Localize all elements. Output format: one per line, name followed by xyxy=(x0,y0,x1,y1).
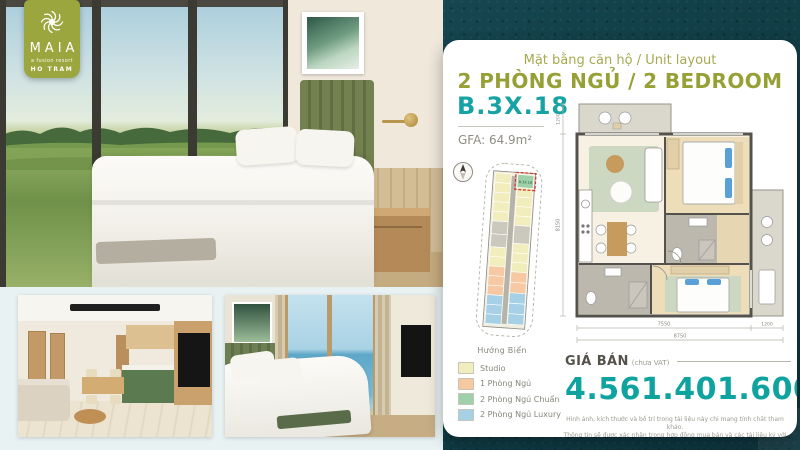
background-texture-patch xyxy=(758,408,800,450)
green-cabinets xyxy=(122,370,176,403)
upper-cabinets xyxy=(126,325,174,349)
legend-item: 2 Phòng Ngủ Chuẩn xyxy=(458,393,561,405)
dining-chair xyxy=(110,395,121,404)
bed-throw xyxy=(96,238,217,264)
building-slab: B.3X.18 xyxy=(475,162,543,337)
bedroom-ocean-photo xyxy=(225,295,435,437)
disclaimer: Hình ảnh, kích thước và bố trí trong tài… xyxy=(559,416,791,437)
pillow xyxy=(295,129,355,168)
price-vat-note: (chưa VAT) xyxy=(632,359,670,367)
price-label: GIÁ BÁN xyxy=(565,354,629,369)
pillow xyxy=(258,357,302,387)
svg-text:7550: 7550 xyxy=(658,322,671,328)
unit-info-card: Mặt bằng căn hộ / Unit layout 2 PHÒNG NG… xyxy=(443,40,797,437)
legend-item: 1 Phòng Ngủ xyxy=(458,378,561,390)
legend-swatch-2br-luxury xyxy=(458,409,474,421)
window-mullion xyxy=(0,0,6,287)
svg-text:1200: 1200 xyxy=(761,322,773,328)
maia-logo-badge: MAIA a fusion resort HO TRAM xyxy=(24,0,80,78)
legend-swatch-studio xyxy=(458,362,474,374)
card-header: Mặt bằng căn hộ / Unit layout 2 PHÒNG NG… xyxy=(443,53,797,93)
compass-icon xyxy=(454,163,473,182)
svg-text:8750: 8750 xyxy=(674,334,687,340)
disclaimer-line: Thông tin sẽ được xác nhận trong hợp đồn… xyxy=(559,432,791,437)
sea-direction-label: Hướng Biển xyxy=(451,346,553,355)
svg-text:1200: 1200 xyxy=(556,113,562,125)
wall-art xyxy=(302,12,364,74)
disclaimer-line: Hình ảnh, kích thước và bố trí trong tài… xyxy=(559,416,791,432)
brand-location: HO TRAM xyxy=(24,66,80,73)
building-keyplan: B.3X.18 xyxy=(449,156,553,348)
wall-art-print xyxy=(307,17,359,69)
legend-swatch-2br-standard xyxy=(458,393,474,405)
flower-icon xyxy=(37,7,67,37)
dining-table xyxy=(82,377,124,394)
bed xyxy=(92,156,374,287)
pillow xyxy=(235,126,299,166)
divider xyxy=(677,361,791,362)
divider xyxy=(458,126,544,127)
legend-item: Studio xyxy=(458,362,561,374)
unit-gfa: GFA: 64.9m² xyxy=(458,133,532,147)
unit-type-legend: Studio 1 Phòng Ngủ 2 Phòng Ngủ Chuẩn 2 P… xyxy=(458,362,561,424)
duvet-fold xyxy=(92,200,374,205)
brand-tagline: a fusion resort xyxy=(24,58,80,64)
wall-lamp-icon xyxy=(404,113,418,127)
svg-text:8150: 8150 xyxy=(556,219,562,232)
card-title: 2 PHÒNG NGỦ / 2 BEDROOM xyxy=(443,69,797,93)
tv-screen xyxy=(401,325,431,377)
coffee-table xyxy=(74,409,106,424)
legend-swatch-1br xyxy=(458,378,474,390)
card-subtitle: Mặt bằng căn hộ / Unit layout xyxy=(443,53,797,68)
tv-screen xyxy=(178,333,210,387)
ac-vent xyxy=(70,304,160,311)
brochure-page: MAIA a fusion resort HO TRAM Mặt bằng că… xyxy=(0,0,800,450)
legend-item: 2 Phòng Ngủ Luxury xyxy=(458,409,561,421)
price-value: 4.561.401.600 xyxy=(565,372,791,407)
sofa xyxy=(18,379,70,421)
unit-floorplan: 1200 8150 7550 1200 8750 xyxy=(553,94,791,356)
brand-name: MAIA xyxy=(24,41,80,56)
living-kitchen-photo xyxy=(18,295,212,437)
wall-art xyxy=(232,302,272,344)
dining-chair xyxy=(86,395,97,404)
price-block: GIÁ BÁN (chưa VAT) 4.561.401.600 xyxy=(565,354,791,407)
